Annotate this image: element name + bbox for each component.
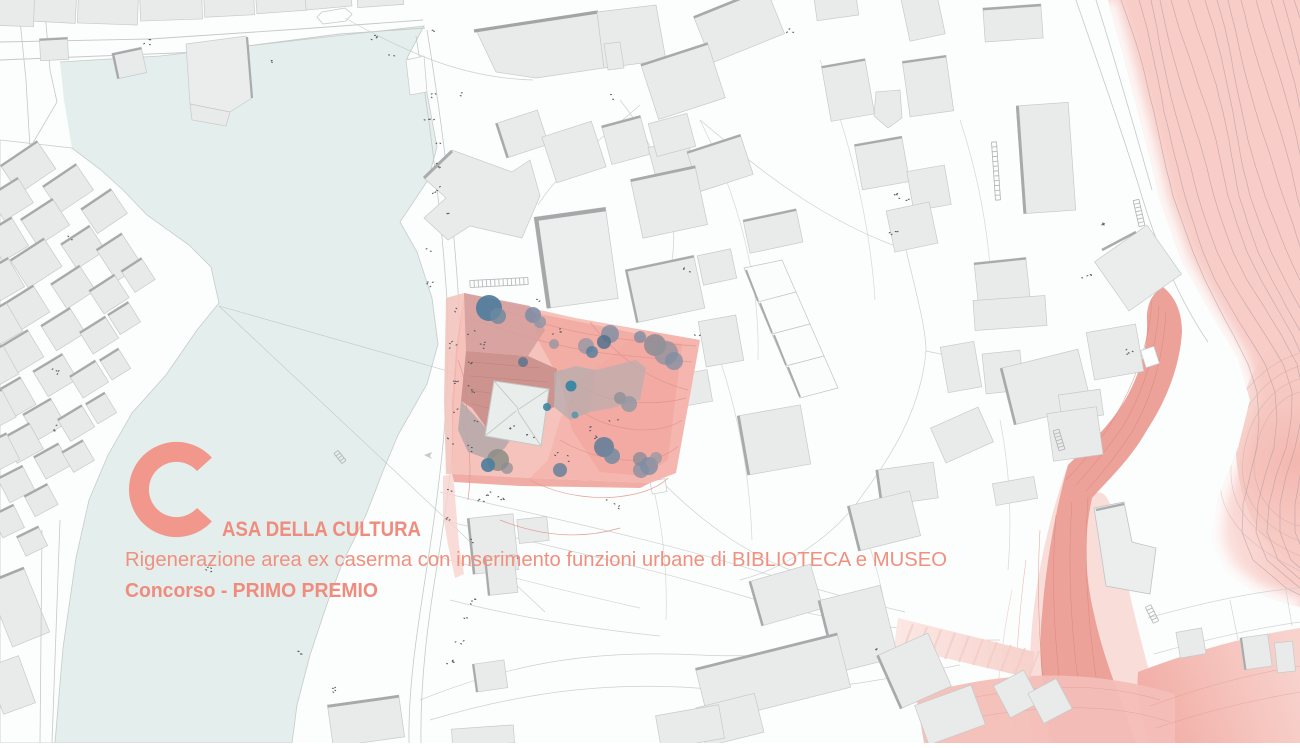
svg-text:Concorso - PRIMO PREMIO: Concorso - PRIMO PREMIO: [125, 579, 378, 602]
svg-text:ASA DELLA CULTURA: ASA DELLA CULTURA: [222, 518, 421, 541]
svg-text:Rigenerazione area ex caserma: Rigenerazione area ex caserma con inseri…: [125, 548, 947, 571]
